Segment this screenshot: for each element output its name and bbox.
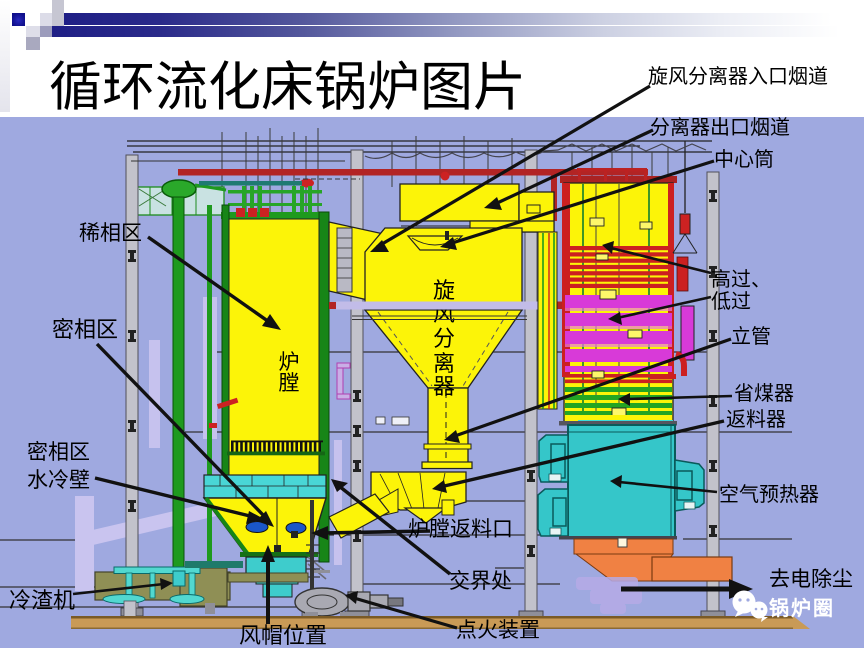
svg-text:低过: 低过	[711, 290, 751, 313]
svg-text:省煤器: 省煤器	[734, 382, 794, 405]
svg-text:密相区: 密相区	[52, 317, 118, 342]
svg-text:立管: 立管	[731, 325, 771, 348]
svg-text:中心筒: 中心筒	[714, 148, 774, 171]
svg-text:离: 离	[433, 351, 455, 376]
svg-text:交界处: 交界处	[449, 569, 512, 593]
svg-text:高过、: 高过、	[711, 268, 771, 291]
svg-text:旋: 旋	[433, 278, 455, 303]
svg-text:密相区: 密相区	[27, 440, 90, 464]
svg-text:点火装置: 点火装置	[456, 618, 540, 642]
svg-text:空气预热器: 空气预热器	[719, 483, 819, 506]
svg-text:去电除尘: 去电除尘	[769, 567, 853, 591]
svg-text:分: 分	[433, 326, 455, 351]
svg-text:水冷壁: 水冷壁	[27, 468, 90, 492]
svg-text:冷渣机: 冷渣机	[9, 588, 75, 613]
svg-text:锅炉圈: 锅炉圈	[769, 596, 835, 620]
svg-text:炉膛返料口: 炉膛返料口	[408, 517, 513, 541]
svg-text:稀相区: 稀相区	[79, 221, 142, 245]
svg-text:分离器出口烟道: 分离器出口烟道	[650, 116, 790, 139]
svg-text:返料器: 返料器	[726, 408, 786, 431]
svg-text:膛: 膛	[279, 371, 300, 395]
svg-text:器: 器	[433, 374, 455, 399]
svg-text:旋风分离器入口烟道: 旋风分离器入口烟道	[648, 65, 828, 88]
svg-text:风帽位置: 风帽位置	[239, 623, 327, 648]
